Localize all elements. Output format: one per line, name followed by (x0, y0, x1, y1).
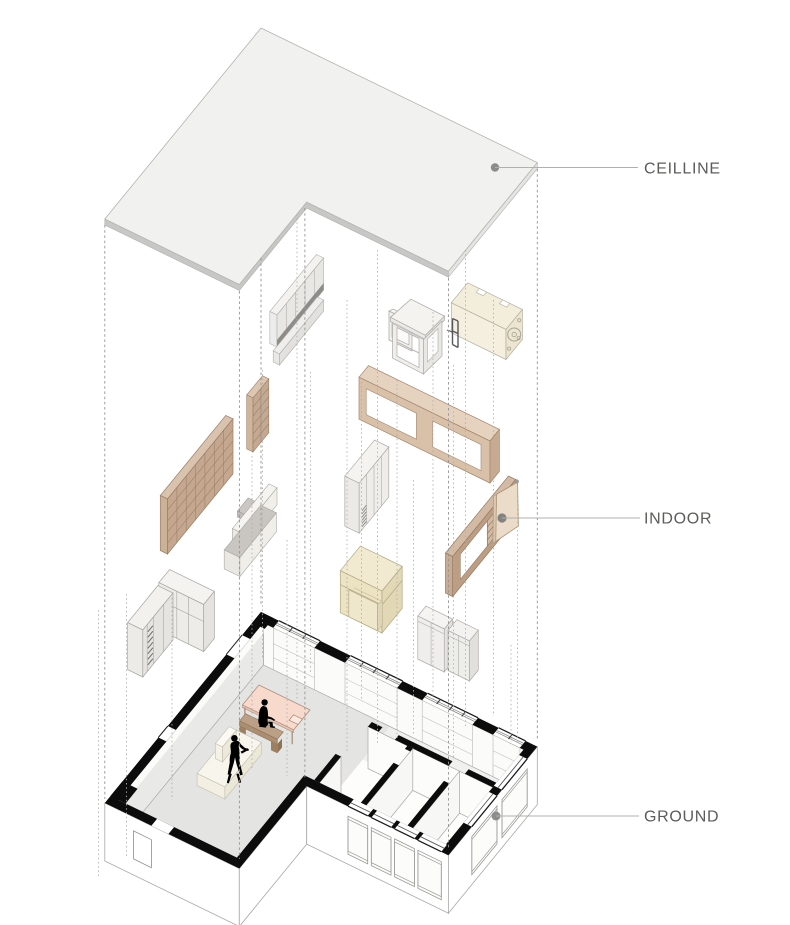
svg-text:INDOOR: INDOOR (644, 511, 712, 528)
svg-text:CEILLINE: CEILLINE (644, 161, 721, 178)
svg-text:GROUND: GROUND (644, 809, 719, 826)
